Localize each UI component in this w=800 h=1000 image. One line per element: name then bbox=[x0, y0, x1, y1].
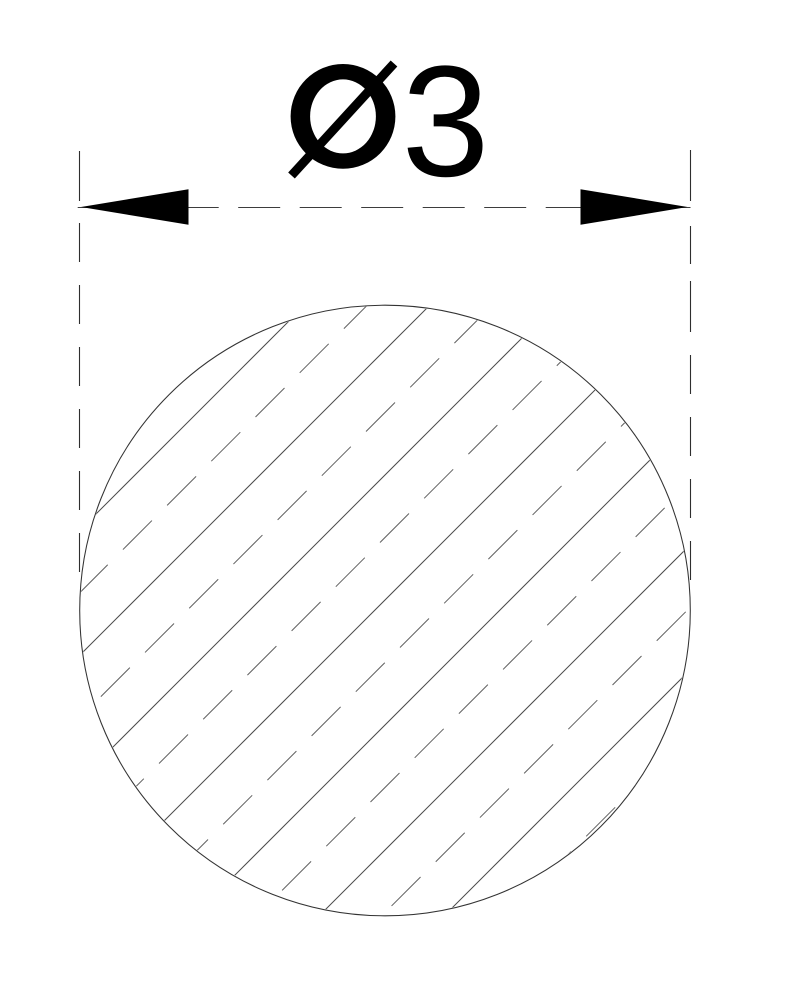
svg-text:3: 3 bbox=[402, 34, 490, 210]
